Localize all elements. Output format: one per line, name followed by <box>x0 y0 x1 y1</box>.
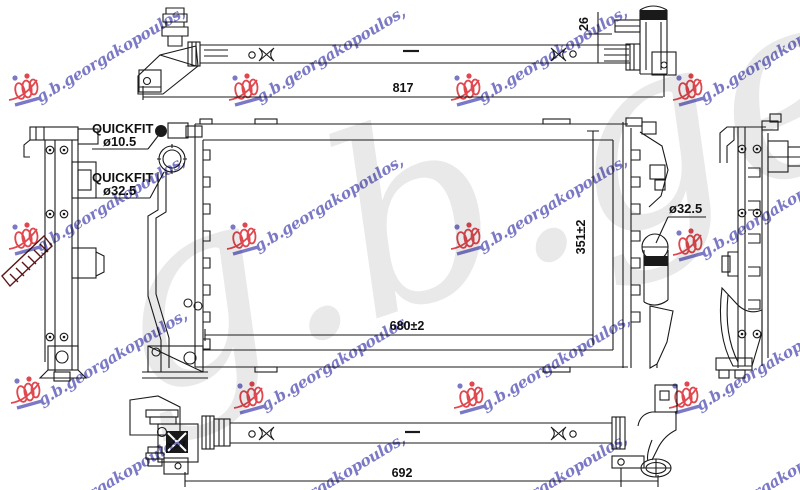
technical-drawing: g.b.georgakopoulos, g.b.geor <box>0 0 800 490</box>
quickfit-port-small <box>155 125 167 137</box>
dim-817-label: 817 <box>393 81 414 95</box>
quickfit-small-line2: ø10.5 <box>103 134 136 149</box>
dia-32-5-label: ø32.5 <box>669 201 702 216</box>
dim-692-label: 692 <box>392 466 413 480</box>
dim-351-label: 351±2 <box>574 220 588 255</box>
radiator-technical-drawing-page: g.b.georgakopoulos, g.b.geor <box>0 0 800 490</box>
